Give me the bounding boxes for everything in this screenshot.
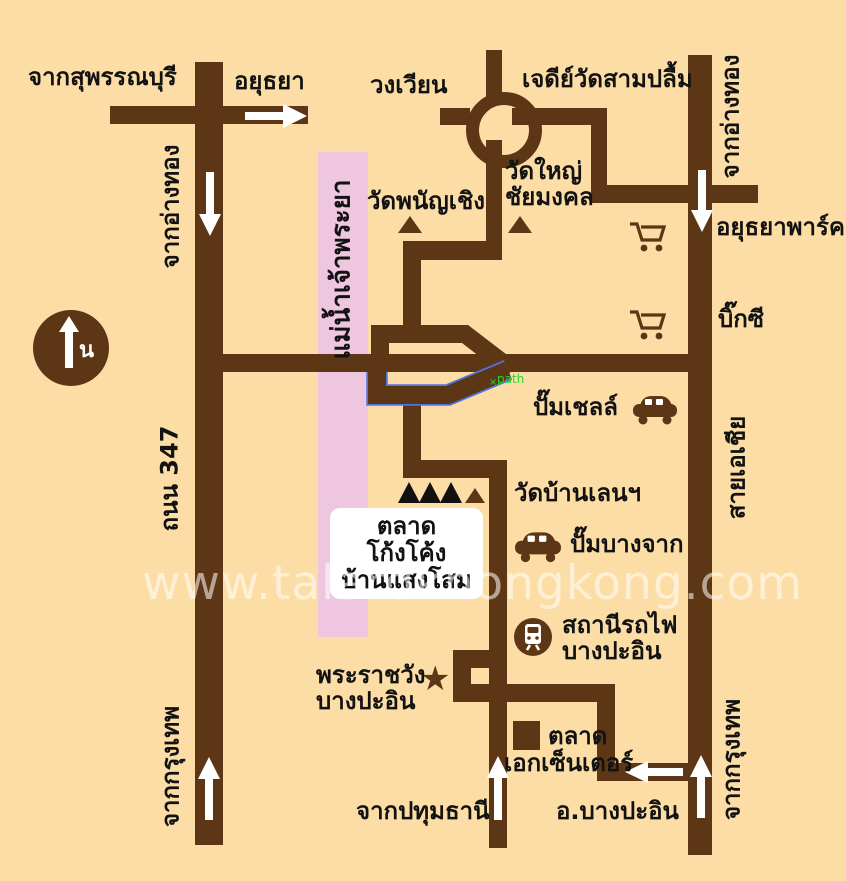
- temple-marker-icon: [398, 216, 422, 233]
- label-line: ชัยมงคล: [505, 184, 594, 210]
- path-annotation: path: [497, 372, 524, 386]
- label-line: พระราชวัง: [316, 661, 425, 689]
- label-line: สถานีรถไฟ: [562, 611, 678, 639]
- route-map: × path น ★: [0, 0, 846, 881]
- label-ayutthaya: อยุธยา: [234, 68, 305, 94]
- shopping-cart-icon: [628, 219, 670, 255]
- label-line: วัดใหญ่: [505, 157, 582, 185]
- label-line: บางปะอิน: [562, 638, 678, 664]
- label-from-pathum-thani: จากปทุมธานี: [356, 798, 489, 824]
- label-train-station: สถานีรถไฟ บางปะอิน: [562, 612, 678, 665]
- car-icon: [514, 528, 562, 564]
- arrow-right-icon: [245, 104, 307, 128]
- label-from-bangkok-left: จากกรุงเทพ: [151, 705, 190, 829]
- label-big-c: บิ๊กซี: [718, 306, 764, 332]
- arrow-up-icon: [198, 757, 220, 820]
- label-roundabout: วงเวียน: [370, 72, 447, 98]
- destination-box: ตลาดโก้งโค้ง บ้านแสงโสม: [330, 508, 483, 599]
- label-bang-pa-in-district: อ.บางปะอิน: [556, 798, 679, 824]
- label-chao-phraya-river: แม่น้ำเจ้าพระยา: [321, 170, 362, 370]
- market-square-icon: [513, 721, 540, 750]
- north-compass: น: [33, 310, 109, 386]
- label-line: บางปะอิน: [316, 688, 425, 714]
- label-ayutthaya-park: อยุธยาพาร์ค: [716, 214, 845, 240]
- north-label: น: [79, 332, 94, 367]
- road-segment-roundabout-west: [440, 108, 470, 125]
- arrow-down-icon: [199, 172, 221, 236]
- interchange-ramps: [360, 310, 520, 410]
- destination-line: ตลาดโก้งโค้ง: [367, 512, 447, 567]
- label-from-suphanburi: จากสุพรรณบุรี: [28, 64, 177, 90]
- arrow-left-icon: [625, 761, 683, 783]
- label-asia-highway: สายเอเชีย: [717, 416, 756, 520]
- label-shell-station: ปั๊มเชลล์: [533, 394, 618, 420]
- label-chedi-wat-sam-pluem: เจดีย์วัดสามปลื้ม: [522, 66, 693, 92]
- train-station-icon: [513, 617, 553, 657]
- market-mountains-icon: [398, 482, 461, 503]
- label-wat-phanan-choeng: วัดพนัญเชิง: [367, 188, 485, 214]
- label-wat-yai-chai-mongkhon: วัดใหญ่ ชัยมงคล: [505, 158, 594, 211]
- label-palace: พระราชวัง บางปะอิน: [316, 662, 425, 715]
- label-market: ตลาด: [548, 723, 607, 749]
- label-from-bangkok-right: จากกรุงเทพ: [712, 698, 751, 822]
- temple-marker-icon: [465, 488, 485, 503]
- label-bangchak-station: ปั๊มบางจาก: [570, 531, 684, 557]
- label-from-angthong-right: จากอ่างทอง: [711, 52, 750, 182]
- road-segment-palace-horizontal: [453, 684, 615, 702]
- road-segment-ne-horizontal: [591, 185, 758, 203]
- destination-line: บ้านแสงโสม: [341, 566, 471, 594]
- label-ek-center: เอกเซ็นเตอร์: [504, 750, 633, 776]
- shopping-cart-icon: [628, 307, 670, 343]
- label-from-angthong-left: จากอ่างทอง: [151, 142, 190, 272]
- arrow-up-icon: [690, 755, 712, 818]
- temple-marker-icon: [508, 216, 532, 233]
- label-road-347: ถนน 347: [150, 424, 189, 534]
- label-wat-ban-len: วัดบ้านเลนฯ: [514, 480, 641, 506]
- car-icon: [632, 392, 678, 426]
